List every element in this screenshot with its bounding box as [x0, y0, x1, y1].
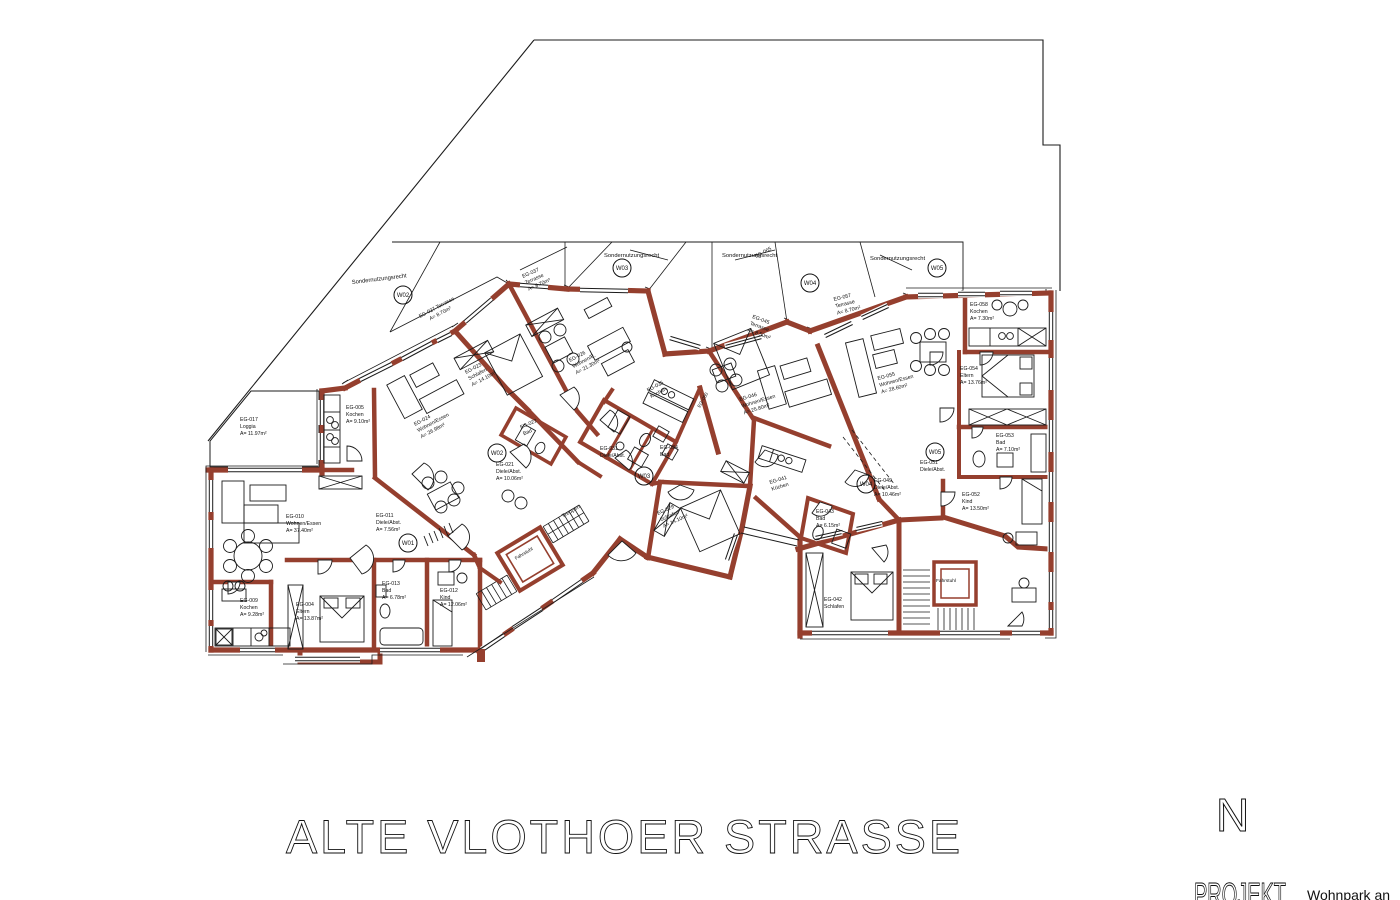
svg-text:W01: W01 [402, 541, 415, 547]
svg-text:Schlafen: Schlafen [824, 604, 844, 610]
svg-text:Kochen: Kochen [346, 412, 364, 418]
svg-text:EG-052: EG-052 [962, 492, 980, 498]
svg-text:Bad: Bad [660, 452, 669, 458]
svg-text:Diele/Abst.: Diele/Abst. [920, 467, 945, 473]
svg-text:Diele/Abst.: Diele/Abst. [600, 453, 625, 459]
svg-text:EG-012: EG-012 [440, 588, 458, 594]
svg-text:Wohnpark an: Wohnpark an [1307, 887, 1390, 900]
svg-text:A= 7.10m²: A= 7.10m² [996, 447, 1020, 453]
svg-text:EG-054: EG-054 [960, 366, 978, 372]
svg-text:Loggia: Loggia [240, 424, 256, 430]
svg-text:EG-004: EG-004 [296, 602, 314, 608]
svg-text:EG-010: EG-010 [286, 514, 304, 520]
svg-text:Kochen: Kochen [970, 309, 988, 315]
svg-text:A= 13.87m²: A= 13.87m² [296, 616, 323, 622]
svg-text:A= 10.46m²: A= 10.46m² [874, 492, 901, 498]
svg-text:N: N [1216, 789, 1249, 841]
svg-text:Diele/Abst.: Diele/Abst. [376, 520, 401, 526]
svg-text:A= 13.76m²: A= 13.76m² [960, 380, 987, 386]
svg-text:EG-031: EG-031 [600, 446, 618, 452]
svg-text:Kind: Kind [962, 499, 972, 505]
svg-text:Diele/Abst.: Diele/Abst. [874, 485, 899, 491]
svg-text:EG-021: EG-021 [496, 462, 514, 468]
svg-text:EG-053: EG-053 [996, 433, 1014, 439]
svg-text:W03: W03 [616, 266, 629, 272]
svg-text:A= 37.40m²: A= 37.40m² [286, 528, 313, 534]
svg-text:EG-009: EG-009 [240, 598, 258, 604]
svg-text:W02: W02 [491, 451, 504, 457]
svg-text:A= 13.50m²: A= 13.50m² [962, 506, 989, 512]
svg-text:EG-034: EG-034 [660, 445, 678, 451]
svg-text:EG-005: EG-005 [346, 405, 364, 411]
svg-text:ALTE VLOTHOER STRASSE: ALTE VLOTHOER STRASSE [286, 810, 963, 863]
svg-text:Kochen: Kochen [240, 605, 258, 611]
svg-text:Eltern: Eltern [296, 609, 310, 615]
svg-text:EG-017: EG-017 [240, 417, 258, 423]
svg-text:Eltern: Eltern [960, 373, 974, 379]
svg-text:EG-013: EG-013 [382, 581, 400, 587]
svg-text:A= 6.15m²: A= 6.15m² [816, 523, 840, 529]
svg-text:Diele/Abst.: Diele/Abst. [496, 469, 521, 475]
svg-text:Sondernutzungsrecht: Sondernutzungsrecht [870, 256, 925, 262]
svg-text:EG-042: EG-042 [824, 597, 842, 603]
svg-text:A= 9.28m²: A= 9.28m² [240, 612, 264, 618]
svg-text:EG-043: EG-043 [816, 509, 834, 515]
svg-text:W04: W04 [804, 281, 817, 287]
svg-text:EG-011: EG-011 [376, 513, 394, 519]
svg-text:A= 7.56m²: A= 7.56m² [376, 527, 400, 533]
svg-text:Fahrstuhl: Fahrstuhl [936, 578, 956, 584]
svg-text:W05: W05 [931, 266, 944, 272]
svg-text:EG-058: EG-058 [970, 302, 988, 308]
svg-text:Bad: Bad [996, 440, 1005, 446]
svg-text:EG-049: EG-049 [874, 478, 892, 484]
svg-text:A= 9.10m²: A= 9.10m² [346, 419, 370, 425]
svg-text:W05: W05 [929, 450, 942, 456]
svg-text:Bad: Bad [816, 516, 825, 522]
svg-text:PROJEKT: PROJEKT [1194, 876, 1286, 900]
svg-text:Sondernutzungsrecht: Sondernutzungsrecht [604, 253, 659, 259]
svg-text:Kind: Kind [440, 595, 450, 601]
svg-text:Wohnen/Essen: Wohnen/Essen [286, 521, 321, 527]
svg-text:A= 6.78m²: A= 6.78m² [382, 595, 406, 601]
svg-text:Bad: Bad [382, 588, 391, 594]
svg-text:Sondernutzungsrecht: Sondernutzungsrecht [722, 253, 777, 259]
svg-text:A= 12.06m²: A= 12.06m² [440, 602, 467, 608]
svg-text:A= 11.97m²: A= 11.97m² [240, 431, 267, 437]
svg-text:W04: W04 [860, 482, 873, 488]
svg-text:A= 10.06m²: A= 10.06m² [496, 476, 523, 482]
svg-text:W03: W03 [638, 474, 651, 480]
svg-text:W02: W02 [397, 293, 410, 299]
svg-text:A= 7.30m²: A= 7.30m² [970, 316, 994, 322]
